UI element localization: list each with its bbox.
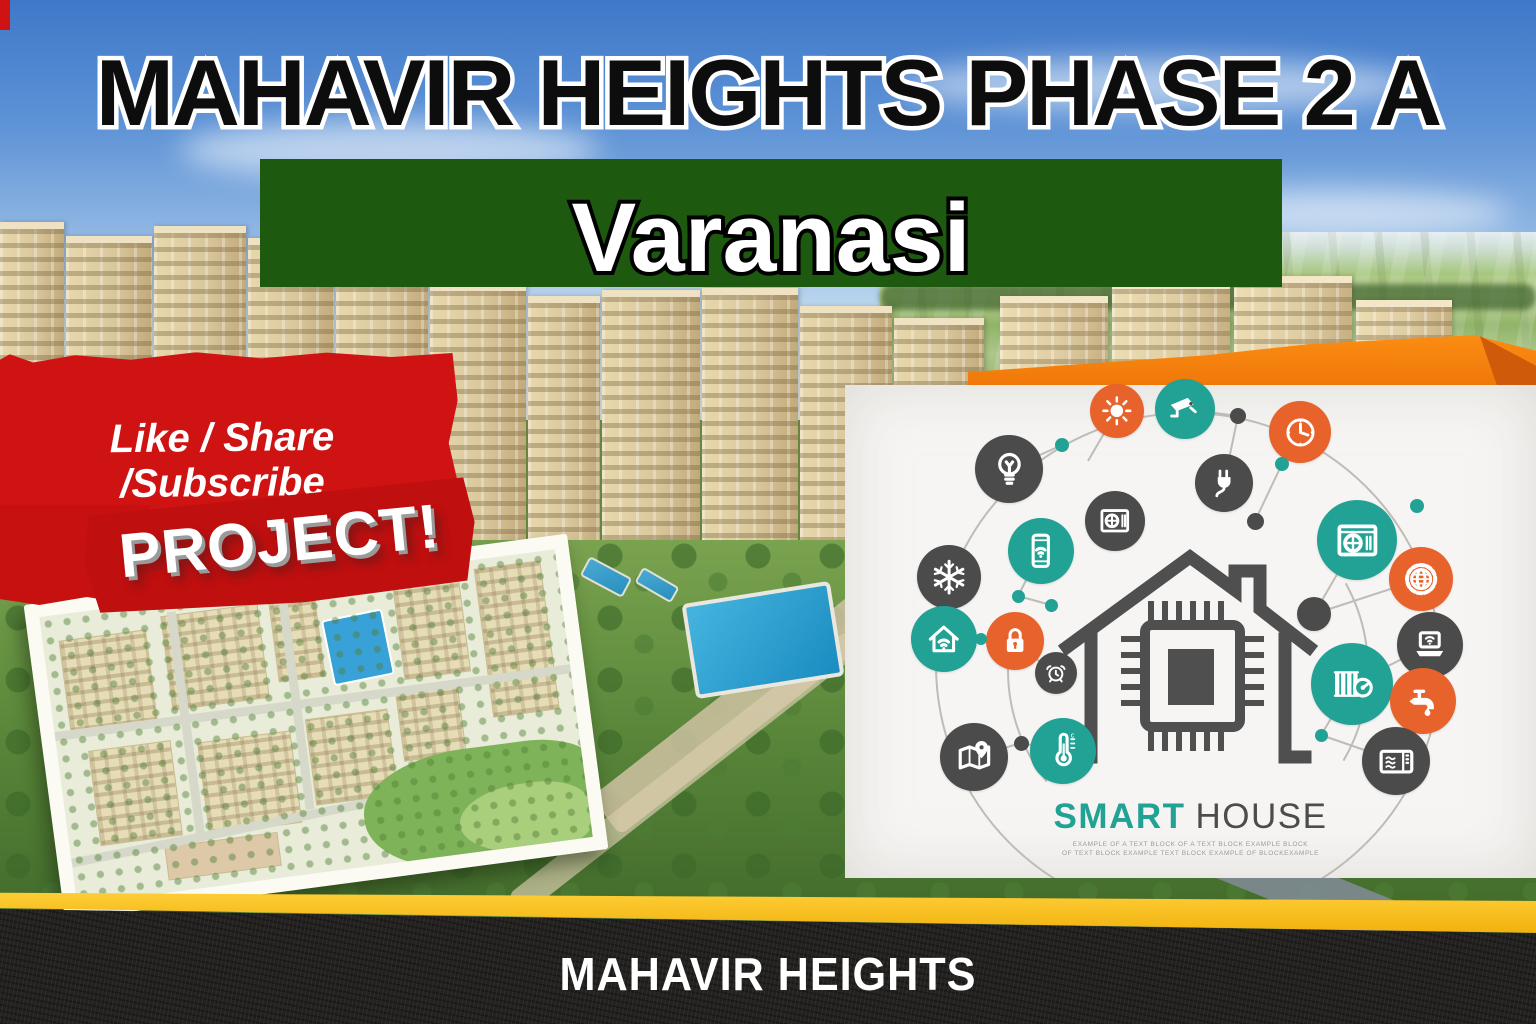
- connector-dot: [1045, 599, 1058, 612]
- alarm-clock-icon: [1035, 652, 1077, 694]
- thumbnail-canvas: c SMARTHOUSE EXAMPLE OF A TEXT BLOCK OF …: [0, 0, 1536, 1024]
- smart-house-infographic: c SMARTHOUSE EXAMPLE OF A TEXT BLOCK OF …: [845, 385, 1536, 878]
- connector-dot: [1055, 438, 1069, 452]
- smartphone-wifi-icon: [1008, 518, 1074, 584]
- hub-node-icon: [1297, 597, 1331, 631]
- ac-vent-icon: [1085, 491, 1145, 551]
- light-bulb-icon: [975, 435, 1043, 503]
- connector-dot: [1247, 513, 1264, 530]
- smart-home-wifi-icon: [911, 606, 977, 672]
- microwave-icon: [1362, 727, 1430, 795]
- location-banner: Varanasi Varanasi: [260, 159, 1282, 287]
- thermometer-icon: c: [1030, 718, 1096, 784]
- connector-dot: [975, 633, 987, 645]
- location-text: Varanasi Varanasi: [260, 189, 1282, 286]
- smart-label: SMART: [1054, 797, 1186, 836]
- connector-dot: [1275, 457, 1289, 471]
- water-tap-icon: [1390, 668, 1456, 734]
- smart-house-caption: EXAMPLE OF A TEXT BLOCK OF A TEXT BLOCK …: [845, 841, 1536, 858]
- map-location-icon: [940, 723, 1008, 791]
- smart-house-title: SMARTHOUSE: [845, 797, 1536, 837]
- power-plug-icon: [1195, 454, 1253, 512]
- house-label: HOUSE: [1195, 797, 1327, 836]
- air-conditioner-icon: [1317, 500, 1397, 580]
- snowflake-icon: [917, 545, 981, 609]
- red-corner-mark: [0, 0, 10, 30]
- padlock-icon: [986, 612, 1044, 670]
- radiator-icon: [1311, 643, 1393, 725]
- svg-text:c: c: [1071, 731, 1075, 740]
- cctv-camera-icon: [1155, 379, 1215, 439]
- connector-dot: [1012, 590, 1025, 603]
- connector-dot: [1230, 408, 1246, 424]
- clock-icon: [1269, 401, 1331, 463]
- sun-icon: [1090, 384, 1144, 438]
- gear-globe-icon: [1389, 547, 1453, 611]
- page-title: MAHAVIR HEIGHTS PHASE 2 A MAHAVIR HEIGHT…: [0, 42, 1536, 144]
- connector-dot: [1014, 736, 1029, 751]
- connector-dot: [1315, 729, 1328, 742]
- connector-dot: [1410, 499, 1424, 513]
- footer-brand: MAHAVIR HEIGHTS: [46, 947, 1490, 1001]
